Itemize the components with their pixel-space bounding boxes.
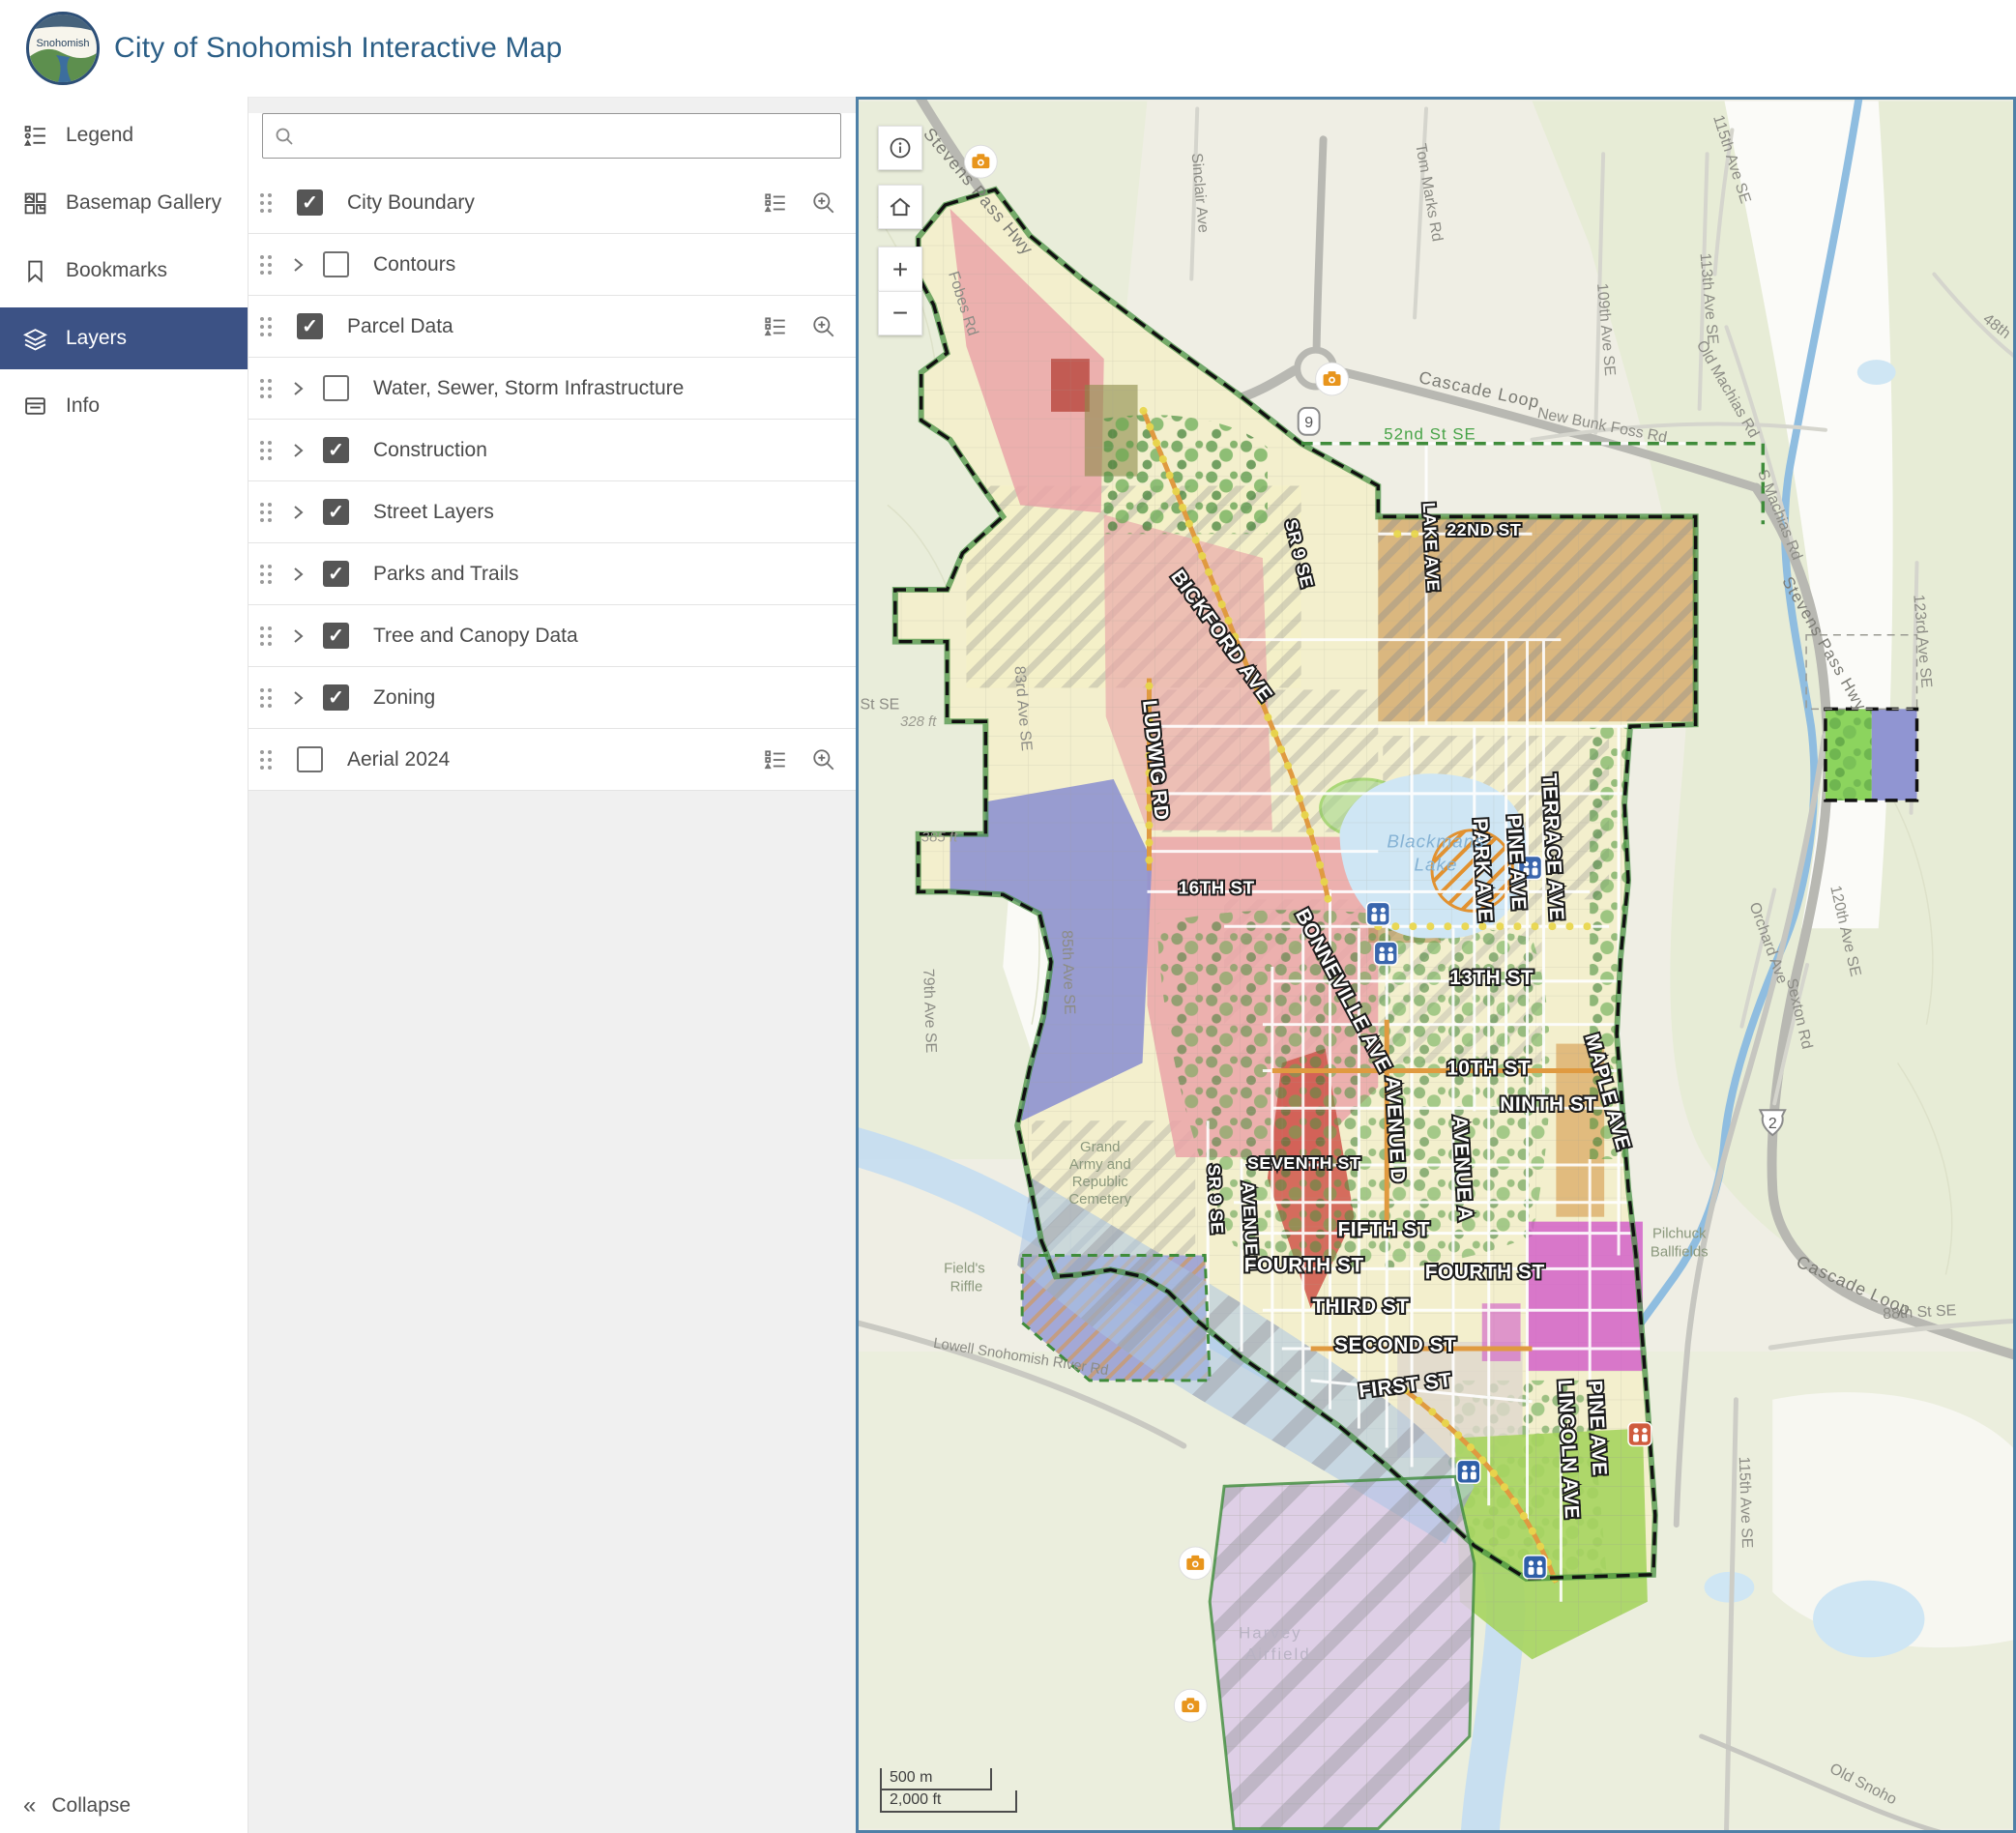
layer-checkbox[interactable]: ✓ <box>297 189 323 216</box>
map-label: Army and <box>1069 1156 1131 1173</box>
zoom-in-button[interactable]: + <box>878 247 922 291</box>
drag-handle-icon <box>258 563 275 586</box>
map-label: Field's <box>944 1260 985 1276</box>
layer-label: Street Layers <box>373 501 856 524</box>
sidebar-item-label: Info <box>66 394 100 418</box>
layer-row[interactable]: ✓Street Layers <box>248 481 856 543</box>
map-label: FOURTH ST <box>1425 1261 1545 1283</box>
highway-shield-9: 9 <box>1299 408 1320 435</box>
svg-text:2: 2 <box>1768 1116 1777 1132</box>
map-label: Republic <box>1072 1174 1129 1190</box>
map-label: Riffle <box>950 1278 983 1295</box>
zoom-to-layer-icon[interactable] <box>811 190 836 216</box>
map-label: SR 9 SE <box>1204 1164 1227 1235</box>
layer-checkbox[interactable] <box>297 746 323 772</box>
sidebar-item-legend[interactable]: Legend <box>0 104 248 166</box>
zoom-to-layer-icon[interactable] <box>811 747 836 772</box>
camera-icon[interactable] <box>1316 363 1349 395</box>
bookmark-icon <box>23 259 47 283</box>
sidebar-item-label: Bookmarks <box>66 259 167 282</box>
camera-icon[interactable] <box>1174 1689 1207 1722</box>
search-icon <box>275 127 294 146</box>
sidebar-item-info[interactable]: Info <box>0 375 248 437</box>
map-label: Cemetery <box>1068 1191 1131 1207</box>
city-logo: Snohomish <box>26 12 100 85</box>
map-label: THIRD ST <box>1312 1295 1409 1318</box>
expand-chevron-icon[interactable] <box>292 379 305 398</box>
map-label: NINTH ST <box>1500 1093 1596 1116</box>
drag-handle-icon <box>258 625 275 648</box>
map-label: 385 ft <box>921 829 958 846</box>
layer-legend-icon[interactable] <box>763 314 788 339</box>
search-input[interactable] <box>302 125 840 148</box>
map-label: Ballfields <box>1651 1243 1709 1260</box>
collapse-icon: « <box>23 1792 36 1819</box>
info-circle-icon <box>889 136 912 160</box>
sidebar-item-label: Basemap Gallery <box>66 191 221 215</box>
layers-icon <box>23 327 47 351</box>
map-container[interactable]: 92 BICKFORD AVESR 9 SELAKE AVE22ND STPAR… <box>856 97 2016 1833</box>
sidebar-item-label: Layers <box>66 327 127 350</box>
layer-checkbox[interactable]: ✓ <box>297 313 323 339</box>
map-label: 22ND ST <box>1446 520 1521 539</box>
drag-handle-icon <box>258 191 275 215</box>
expand-chevron-icon[interactable] <box>292 626 305 646</box>
map-label: Grand <box>1080 1139 1120 1155</box>
layer-label: Construction <box>373 439 856 462</box>
layer-row[interactable]: Water, Sewer, Storm Infrastructure <box>248 358 856 420</box>
map-info-button[interactable] <box>878 126 922 170</box>
poi-icon[interactable] <box>1366 902 1389 925</box>
layer-checkbox[interactable]: ✓ <box>323 684 349 711</box>
layer-label: Parks and Trails <box>373 563 856 586</box>
layer-label: Parcel Data <box>347 315 763 338</box>
collapse-button[interactable]: « Collapse <box>23 1792 131 1819</box>
layer-row[interactable]: ✓Tree and Canopy Data <box>248 605 856 667</box>
logo-text: Snohomish <box>36 38 89 49</box>
poi-icon[interactable] <box>1524 1556 1547 1579</box>
layer-search[interactable] <box>262 113 841 159</box>
layer-row[interactable]: ✓Zoning <box>248 667 856 729</box>
map-label: 79th Ave SE <box>920 969 939 1054</box>
app-root: Snohomish City of Snohomish Interactive … <box>0 0 2016 1833</box>
home-icon <box>888 194 913 219</box>
expand-chevron-icon[interactable] <box>292 255 305 275</box>
layer-label: Aerial 2024 <box>347 748 763 771</box>
basemap-gallery-icon <box>23 191 47 216</box>
expand-chevron-icon[interactable] <box>292 565 305 584</box>
layer-row[interactable]: ✓Construction <box>248 420 856 481</box>
layer-checkbox[interactable] <box>323 375 349 401</box>
layer-row[interactable]: Contours <box>248 234 856 296</box>
layer-legend-icon[interactable] <box>763 747 788 772</box>
app-header: Snohomish City of Snohomish Interactive … <box>0 0 2016 97</box>
collapse-label: Collapse <box>51 1794 131 1818</box>
scalebar-imperial: 2,000 ft <box>880 1790 1017 1813</box>
map-label: SEVENTH ST <box>1247 1153 1360 1173</box>
sidebar-item-layers[interactable]: Layers <box>0 307 248 369</box>
layer-label: City Boundary <box>347 191 763 215</box>
layer-checkbox[interactable]: ✓ <box>323 561 349 587</box>
scalebar-metric: 500 m <box>880 1768 992 1790</box>
map-canvas[interactable]: 92 BICKFORD AVESR 9 SELAKE AVE22ND STPAR… <box>859 100 2013 1830</box>
layer-checkbox[interactable]: ✓ <box>323 499 349 525</box>
layer-row[interactable]: Aerial 2024 <box>248 729 856 791</box>
map-label: 52nd St SE <box>1384 425 1475 444</box>
map-label: SECOND ST <box>1334 1334 1456 1356</box>
drag-handle-icon <box>258 501 275 524</box>
layer-checkbox[interactable]: ✓ <box>323 623 349 649</box>
layer-row[interactable]: ✓City Boundary <box>248 172 856 234</box>
drag-handle-icon <box>258 253 275 276</box>
zoom-to-layer-icon[interactable] <box>811 314 836 339</box>
drag-handle-icon <box>258 439 275 462</box>
sidebar: Legend Basemap Gallery Bookmarks <box>0 97 248 1833</box>
poi-icon[interactable] <box>1374 942 1397 965</box>
layer-row[interactable]: ✓Parks and Trails <box>248 543 856 605</box>
drag-handle-icon <box>258 686 275 710</box>
map-label: 13TH ST <box>1449 967 1534 989</box>
map-label: FIFTH ST <box>1337 1219 1430 1241</box>
legend-icon <box>23 124 47 148</box>
layer-label: Contours <box>373 253 856 276</box>
map-label: 115th Ave SE <box>1736 1456 1755 1548</box>
layer-label: Water, Sewer, Storm Infrastructure <box>373 377 856 400</box>
sidebar-item-basemap-gallery[interactable]: Basemap Gallery <box>0 172 248 234</box>
layer-checkbox[interactable]: ✓ <box>323 437 349 463</box>
map-label: Harvey <box>1239 1624 1302 1643</box>
drag-handle-icon <box>258 377 275 400</box>
zoom-out-button[interactable]: − <box>878 291 922 335</box>
camera-icon[interactable] <box>1179 1547 1212 1580</box>
layer-legend-icon[interactable] <box>763 190 788 216</box>
layer-label: Tree and Canopy Data <box>373 625 856 648</box>
layer-rows: ✓City BoundaryContours✓Parcel DataWater,… <box>248 172 856 791</box>
poi-icon[interactable] <box>1457 1460 1480 1483</box>
map-label: Airfield <box>1245 1644 1311 1663</box>
map-label: 16TH ST <box>1179 878 1255 898</box>
expand-chevron-icon[interactable] <box>292 503 305 522</box>
drag-handle-icon <box>258 315 275 338</box>
layer-checkbox[interactable] <box>323 251 349 277</box>
page-title: City of Snohomish Interactive Map <box>114 0 562 97</box>
map-label: 85th Ave SE <box>1058 930 1077 1015</box>
scalebar: 500 m 2,000 ft <box>880 1768 1017 1813</box>
poi-icon[interactable] <box>1628 1423 1651 1446</box>
map-label: Pilchuck <box>1652 1226 1707 1242</box>
layers-panel: ✓City BoundaryContours✓Parcel DataWater,… <box>248 97 856 1833</box>
map-label: St SE <box>861 696 900 713</box>
map-home-button[interactable] <box>878 185 922 229</box>
svg-text:9: 9 <box>1304 415 1313 431</box>
drag-handle-icon <box>258 748 275 771</box>
expand-chevron-icon[interactable] <box>292 441 305 460</box>
sidebar-item-label: Legend <box>66 124 133 147</box>
map-label: 328 ft <box>900 713 937 730</box>
layer-row[interactable]: ✓Parcel Data <box>248 296 856 358</box>
info-icon <box>23 394 47 419</box>
map-label: Blackmans <box>1387 832 1484 853</box>
map-label: FOURTH ST <box>1244 1254 1364 1276</box>
sidebar-item-bookmarks[interactable]: Bookmarks <box>0 240 248 302</box>
layer-label: Zoning <box>373 686 856 710</box>
layer-list: ✓City BoundaryContours✓Parcel DataWater,… <box>248 113 856 791</box>
expand-chevron-icon[interactable] <box>292 688 305 708</box>
map-label: 10TH ST <box>1446 1057 1531 1079</box>
map-label: Lake <box>1415 855 1458 875</box>
